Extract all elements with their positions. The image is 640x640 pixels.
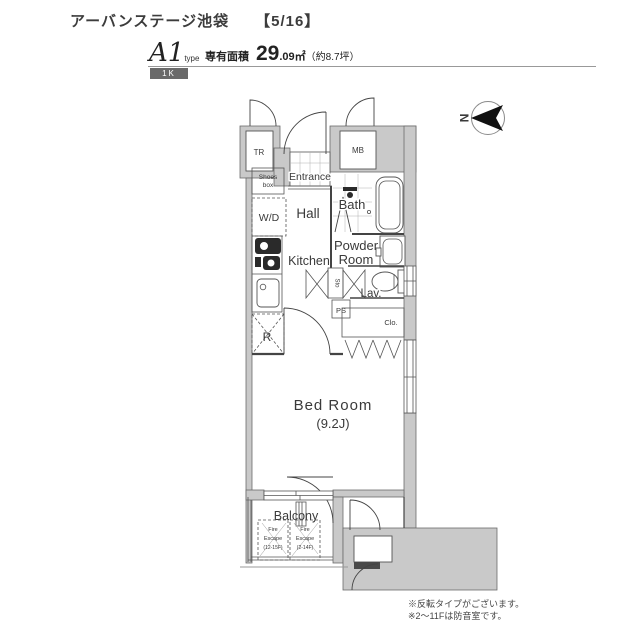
powder-room-label-1: Powder (334, 238, 379, 253)
hall-label: Hall (296, 206, 319, 221)
washbasin (376, 236, 405, 267)
pipe-space-label: PS (336, 306, 346, 315)
trunk-room-door-arc (250, 100, 276, 126)
shoes-box-label-2: box (263, 182, 274, 189)
kitchen-sink (257, 279, 279, 307)
powder-room-label-2: Room (339, 252, 374, 267)
compass-arrow (471, 105, 503, 131)
closet-bifold-doors (345, 340, 401, 358)
fire-escape-2-label-1: Fire (300, 527, 309, 533)
meter-box-label: MB (352, 146, 364, 155)
bedroom-door-arc (284, 308, 330, 354)
floor-plan: TR MB Entrance Shoes box W/D Hall (0, 0, 640, 640)
entrance-label: Entrance (289, 171, 331, 183)
closet-label: Clo. (384, 318, 397, 327)
bedroom-label: Bed Room (294, 397, 373, 414)
footnote-2: ※2～11Fは防音室です。 (408, 611, 524, 623)
fire-escape-hatch-1: Fire Escape (12-15F) (258, 520, 288, 560)
fire-escape-2-label-2: Escape (296, 536, 314, 542)
lavatory: Lav. (350, 266, 416, 300)
compass-north-label: N (457, 114, 471, 123)
powder-room: Powder Room (334, 236, 405, 267)
alcove-threshold (354, 562, 380, 569)
alcove-door-arc-1 (350, 500, 380, 530)
fire-escape-1-label-1: Fire (268, 527, 277, 533)
compass: N (457, 102, 505, 135)
alcove-box (354, 536, 392, 562)
shoes-box-label-1: Shoes (259, 174, 278, 181)
refrigerator-label: R (263, 330, 272, 344)
meter-box-door-arc (346, 98, 374, 126)
storage: Sto (306, 268, 365, 298)
balcony-sliding-window (264, 491, 333, 500)
stove (255, 238, 281, 270)
kitchen-label: Kitchen (288, 254, 330, 268)
trunk-room: TR (246, 100, 276, 171)
footnote-1: ※反転タイプがございます。 (408, 599, 524, 611)
fire-escape-1-label-3: (12-15F) (263, 545, 283, 551)
fire-escape-1-label-2: Escape (264, 536, 282, 542)
meter-box: MB (340, 98, 376, 169)
balcony: Balcony Fire Escape (12-15F) Fire Escape… (240, 491, 348, 567)
bedroom-size-label: (9.2J) (316, 416, 349, 431)
entrance: Entrance (284, 112, 332, 189)
washer-dryer-label: W/D (259, 212, 280, 224)
bathroom: Bath (333, 174, 404, 234)
bathtub (376, 177, 403, 233)
closet: Clo. (342, 308, 404, 358)
bedroom-window (404, 340, 416, 413)
storage-label: Sto (334, 278, 340, 288)
kitchen: Kitchen (252, 236, 330, 312)
trunk-room-label: TR (254, 148, 265, 157)
refrigerator-space: R (252, 314, 284, 354)
bath-label: Bath (339, 197, 366, 212)
bath-drain (367, 210, 370, 213)
entrance-step (288, 186, 332, 189)
fire-escape-2-label-3: (2-14F) (297, 545, 314, 551)
footnotes: ※反転タイプがございます。 ※2～11Fは防音室です。 (408, 599, 524, 622)
